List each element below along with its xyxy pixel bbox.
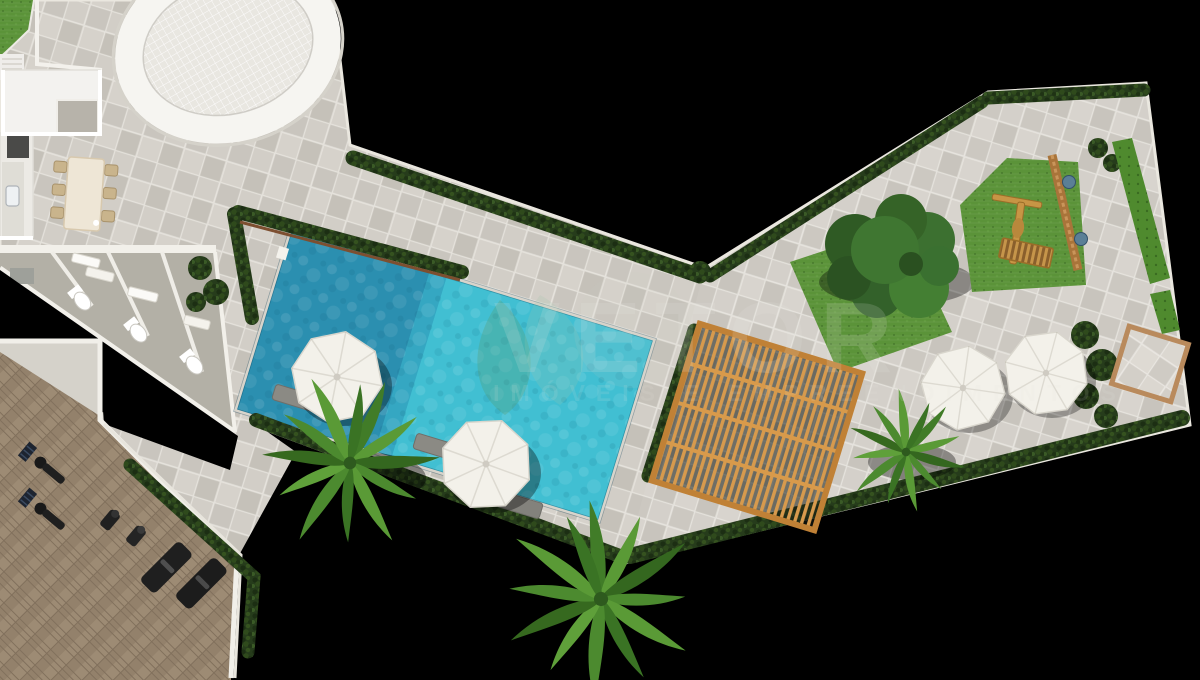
dining-chair <box>103 187 117 199</box>
restroom-top-wall <box>0 245 216 253</box>
dining-table <box>64 157 105 231</box>
dining-chair <box>101 210 115 222</box>
watermark-tagline-text: IMÓVEIS E EMPREENDIMENTOS <box>493 379 1127 406</box>
site-plan: VETOR IMÓVEIS E EMPREENDIMENTOS <box>0 0 1200 680</box>
storage-unit <box>7 136 29 158</box>
sink <box>6 186 19 206</box>
site-plan-svg: VETOR IMÓVEIS E EMPREENDIMENTOS <box>0 0 1200 680</box>
hedge-top-right-edge <box>988 90 1144 98</box>
round-chair <box>1063 176 1076 189</box>
dining-chair <box>54 161 68 173</box>
dining-chair <box>50 207 64 219</box>
dining-chair <box>52 184 66 196</box>
watermark-brand-text: VETOR <box>494 282 907 394</box>
kitchen-counter <box>57 100 98 133</box>
dining-chair <box>104 164 118 176</box>
round-chair <box>1075 233 1088 246</box>
